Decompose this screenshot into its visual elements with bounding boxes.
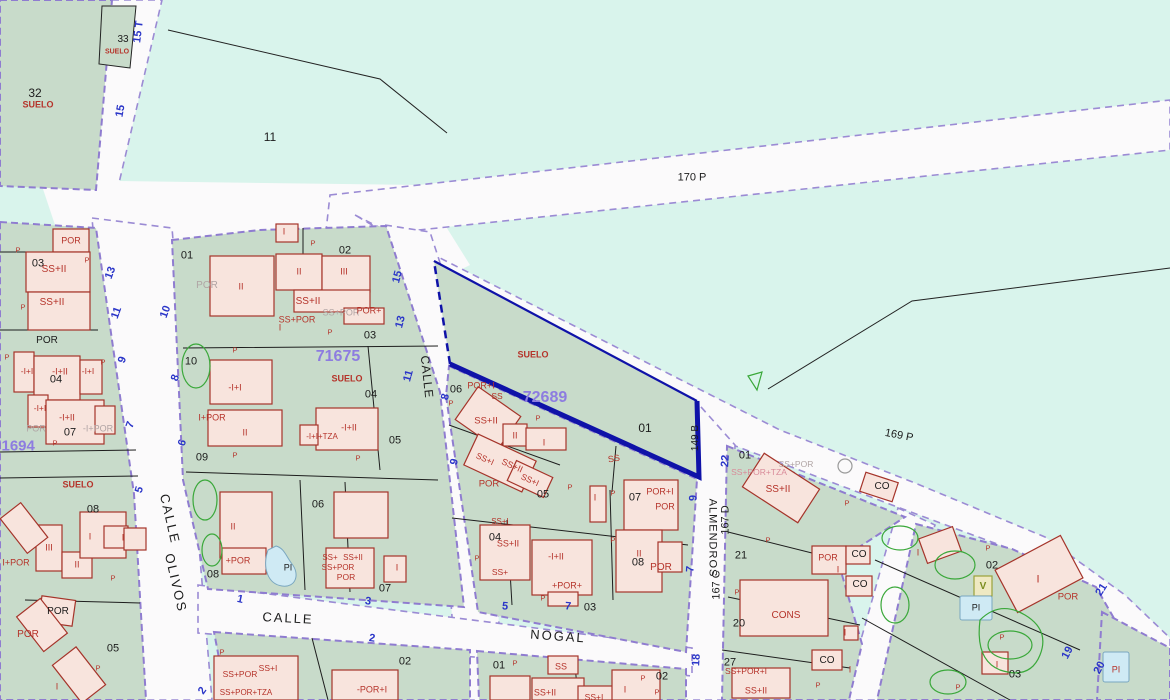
building[interactable] xyxy=(844,626,858,640)
building[interactable] xyxy=(812,650,842,670)
building[interactable] xyxy=(210,360,272,404)
block-parcel-33[interactable] xyxy=(99,6,136,68)
building[interactable] xyxy=(344,308,384,324)
building[interactable] xyxy=(222,548,266,574)
building[interactable] xyxy=(812,546,846,574)
building[interactable] xyxy=(732,668,790,698)
building-cons[interactable] xyxy=(740,580,828,636)
building[interactable] xyxy=(334,492,388,538)
building[interactable] xyxy=(503,424,527,446)
building[interactable] xyxy=(332,670,398,700)
building[interactable] xyxy=(276,224,298,242)
building[interactable] xyxy=(276,254,322,290)
building[interactable] xyxy=(384,556,406,582)
pool[interactable] xyxy=(960,596,992,620)
building[interactable] xyxy=(26,252,90,292)
building[interactable] xyxy=(322,256,370,292)
cadastral-map-canvas[interactable] xyxy=(0,0,1170,700)
building[interactable] xyxy=(316,408,378,450)
building[interactable] xyxy=(624,480,678,530)
building[interactable] xyxy=(548,592,578,606)
building[interactable] xyxy=(846,546,870,564)
building[interactable] xyxy=(532,540,592,595)
building[interactable] xyxy=(490,676,530,700)
building[interactable] xyxy=(34,356,80,400)
building[interactable] xyxy=(548,656,578,674)
building[interactable] xyxy=(846,576,872,596)
cadastral-map-stage: CALLEOLIVOSCALLENOGALCALLEALMENDROS167 D… xyxy=(0,0,1170,700)
building[interactable] xyxy=(14,352,34,392)
building[interactable] xyxy=(95,406,115,434)
block-parcel-32[interactable] xyxy=(0,0,112,190)
building[interactable] xyxy=(124,528,146,550)
building[interactable] xyxy=(326,548,374,588)
building-v[interactable] xyxy=(974,576,992,596)
building[interactable] xyxy=(612,670,660,700)
building[interactable] xyxy=(210,256,274,316)
building[interactable] xyxy=(526,428,566,450)
building[interactable] xyxy=(590,486,606,522)
building[interactable] xyxy=(80,360,102,394)
building[interactable] xyxy=(214,656,298,700)
pool[interactable] xyxy=(1103,652,1129,682)
building[interactable] xyxy=(208,410,282,446)
building[interactable] xyxy=(616,530,662,592)
building[interactable] xyxy=(658,542,682,572)
building[interactable] xyxy=(28,292,90,330)
building[interactable] xyxy=(480,525,530,580)
building[interactable] xyxy=(28,395,48,427)
building[interactable] xyxy=(300,425,318,445)
building[interactable] xyxy=(532,678,584,700)
building[interactable] xyxy=(53,229,89,252)
